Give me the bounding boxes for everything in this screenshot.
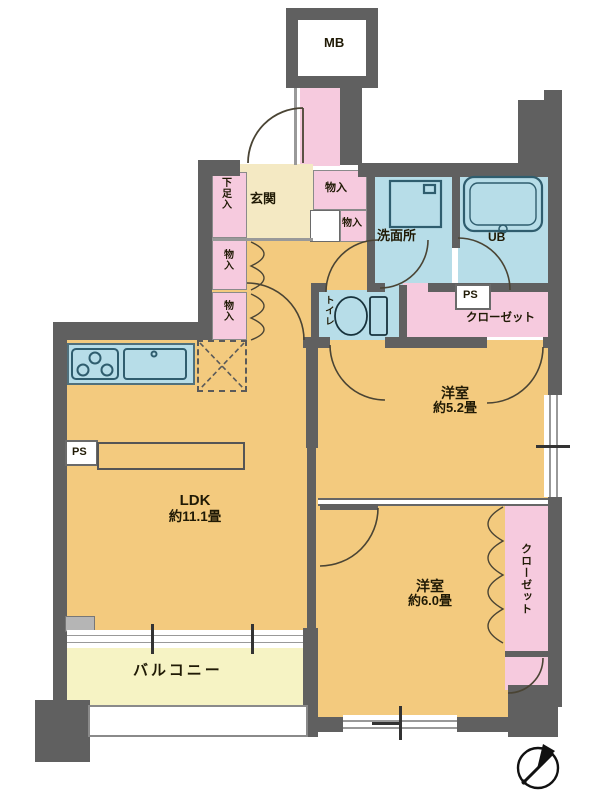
ps-left-label: PS xyxy=(72,446,87,459)
closet-upper-label: クローゼット xyxy=(466,312,535,325)
storage-label-2: 物入 xyxy=(342,218,362,230)
bedroom2-door xyxy=(320,508,378,566)
western1-label: 洋室 約5.2畳 xyxy=(405,385,505,416)
closet-lower-door xyxy=(508,658,543,693)
bedroom1-door xyxy=(330,345,385,400)
toilet-label: トイレ xyxy=(322,295,333,339)
hall-ldk-door xyxy=(247,283,304,340)
balcony-label: バルコニー xyxy=(133,662,223,679)
entrance-door xyxy=(248,108,303,163)
ldk-label: LDK 約11.1畳 xyxy=(140,492,250,525)
kitchen-sink-icon xyxy=(124,349,186,379)
washroom-door xyxy=(380,240,428,288)
toilet-door xyxy=(326,240,378,292)
toilet-icon xyxy=(335,297,387,335)
washing-machine-icon xyxy=(390,181,441,227)
mb-label: MB xyxy=(324,36,344,51)
genkan-label: 玄関 xyxy=(250,192,276,207)
door-arcs xyxy=(247,238,543,693)
bath-door xyxy=(458,238,510,290)
bathtub-icon xyxy=(464,177,542,233)
floor-plan: MB 玄関 下足入 物入 物入 物入 物入 洗面所 UB トイレ PS PS ク… xyxy=(0,0,600,800)
storage-label-4: 物入 xyxy=(221,300,233,340)
washroom-label: 洗面所 xyxy=(377,229,416,244)
bath-label: UB xyxy=(488,231,505,245)
refrigerator-x xyxy=(200,343,244,389)
storage-label-3: 物入 xyxy=(221,249,233,289)
western2-label: 洋室 約6.0畳 xyxy=(375,578,485,609)
ps-right-label: PS xyxy=(463,289,478,302)
compass-icon xyxy=(518,744,558,788)
plan-linework xyxy=(0,0,600,800)
closet-side-label: クローゼット xyxy=(519,543,532,658)
shoe-box-label: 下足入 xyxy=(219,177,231,235)
storage-label-1: 物入 xyxy=(325,182,347,195)
stove-icon xyxy=(72,349,118,379)
